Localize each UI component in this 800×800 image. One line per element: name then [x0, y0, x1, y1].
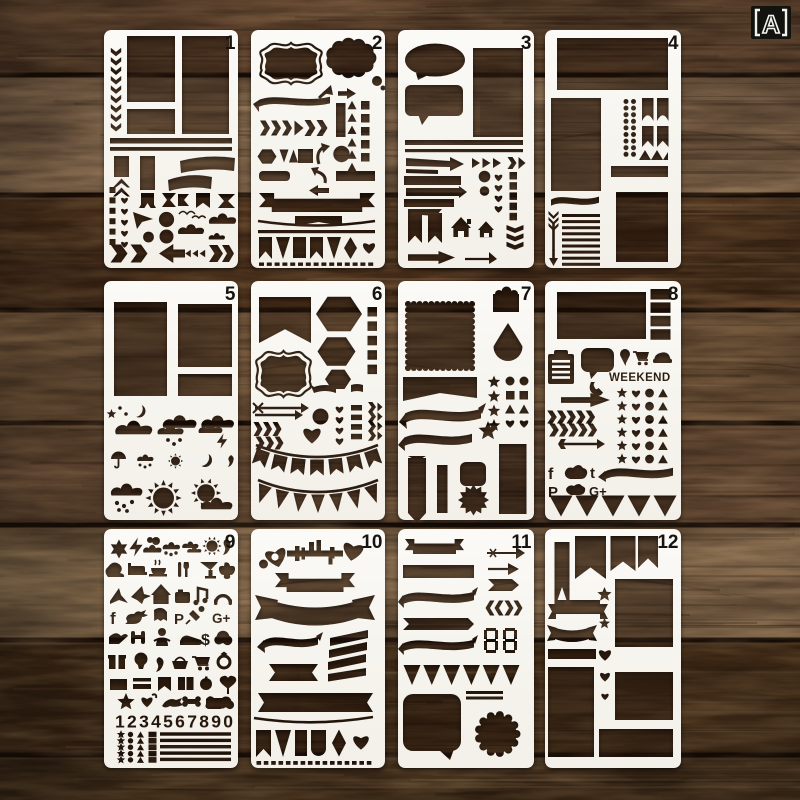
svg-text:3: 3 [521, 33, 532, 54]
svg-text:7: 7 [521, 284, 532, 305]
svg-text:1: 1 [225, 33, 236, 54]
svg-text:$: $ [201, 632, 210, 649]
svg-text:f: f [548, 466, 554, 483]
svg-text:P: P [174, 611, 184, 628]
svg-text:1234567890: 1234567890 [115, 712, 235, 732]
svg-text:2: 2 [372, 33, 383, 54]
svg-text:WEEKEND: WEEKEND [609, 372, 671, 384]
svg-text:11: 11 [511, 532, 532, 553]
svg-text:G+: G+ [212, 611, 231, 626]
svg-text:f: f [110, 609, 116, 628]
svg-text:4: 4 [668, 33, 679, 54]
svg-text:6: 6 [372, 284, 383, 305]
svg-text:t: t [590, 465, 595, 482]
svg-text:A: A [762, 11, 780, 39]
svg-text:8: 8 [668, 284, 679, 305]
svg-text:5: 5 [225, 284, 236, 305]
svg-text:10: 10 [361, 532, 382, 553]
svg-text:12: 12 [657, 532, 678, 553]
svg-text:9: 9 [225, 532, 236, 553]
